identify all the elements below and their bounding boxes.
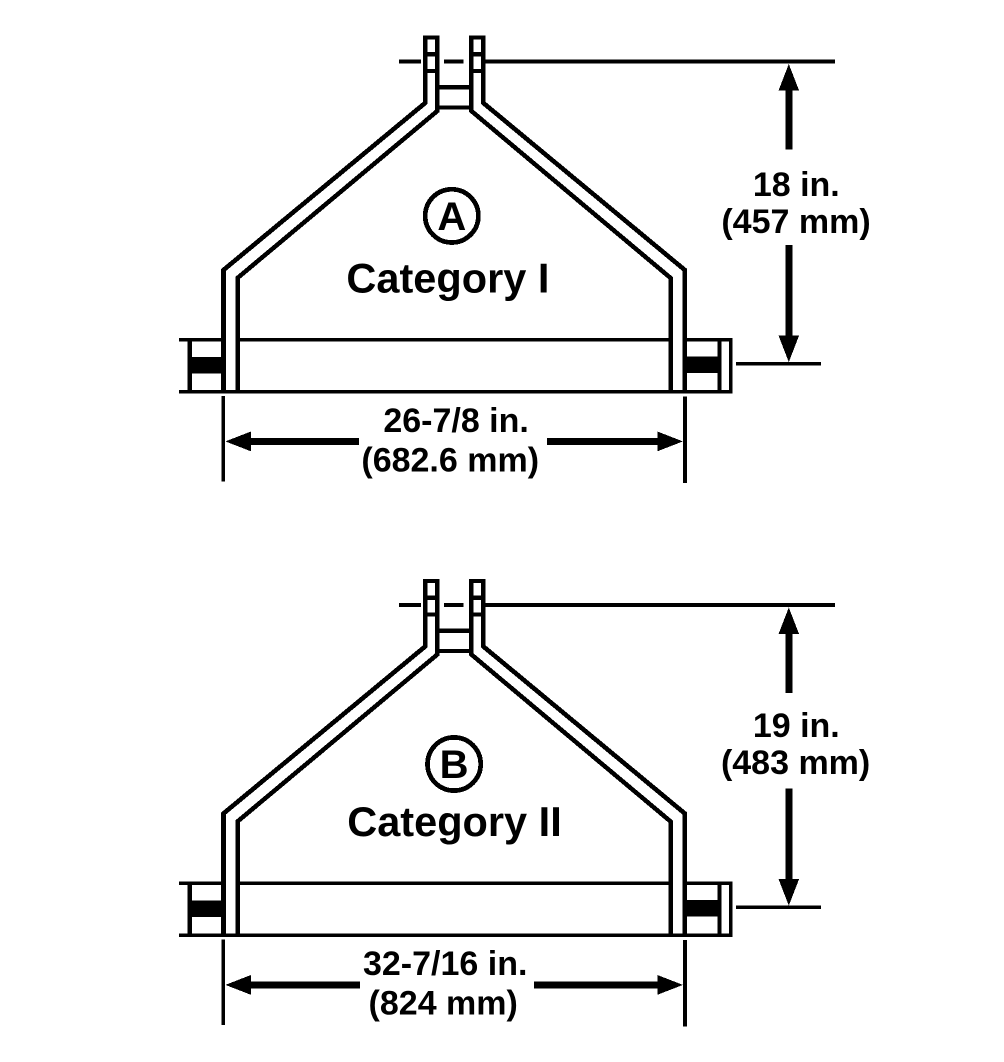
svg-text:18 in.: 18 in. [753, 166, 840, 204]
svg-text:(457 mm): (457 mm) [721, 203, 870, 241]
svg-text:32-7/16 in.: 32-7/16 in. [363, 945, 527, 983]
svg-text:(824 mm): (824 mm) [369, 985, 518, 1023]
svg-text:(682.6 mm): (682.6 mm) [361, 442, 539, 480]
svg-text:Category I: Category I [346, 255, 549, 302]
svg-text:Category II: Category II [347, 798, 561, 845]
svg-text:B: B [440, 743, 469, 787]
svg-text:19 in.: 19 in. [753, 707, 840, 745]
svg-text:26-7/8 in.: 26-7/8 in. [383, 402, 529, 440]
svg-text:(483 mm): (483 mm) [721, 744, 870, 782]
svg-text:A: A [437, 195, 466, 239]
